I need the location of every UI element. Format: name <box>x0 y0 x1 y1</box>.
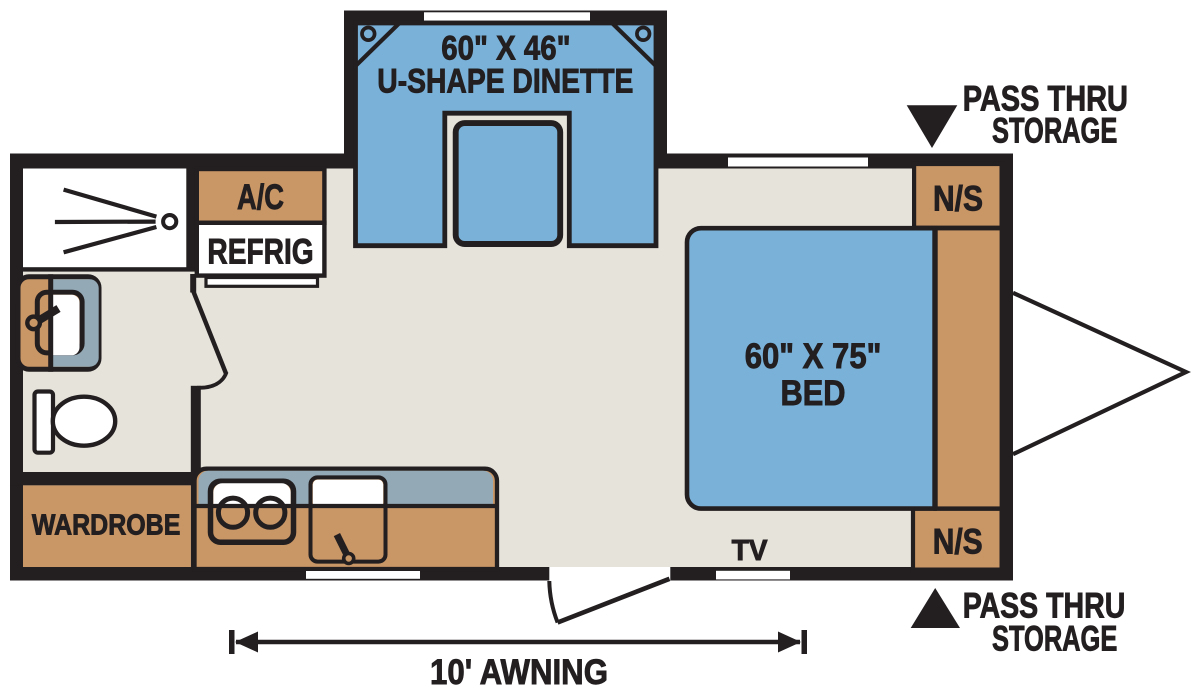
svg-text:WARDROBE: WARDROBE <box>32 509 181 541</box>
svg-text:REFRIG: REFRIG <box>207 232 313 272</box>
svg-text:A/C: A/C <box>237 178 284 217</box>
svg-text:10' AWNING: 10' AWNING <box>430 653 608 691</box>
svg-text:U-SHAPE DINETTE: U-SHAPE DINETTE <box>377 63 633 101</box>
svg-text:STORAGE: STORAGE <box>992 112 1117 151</box>
svg-text:N/S: N/S <box>933 522 983 562</box>
svg-text:60" X 75": 60" X 75" <box>745 337 882 376</box>
svg-text:BED: BED <box>781 374 846 413</box>
svg-text:TV: TV <box>732 535 768 567</box>
svg-text:STORAGE: STORAGE <box>992 620 1117 659</box>
svg-text:N/S: N/S <box>933 179 983 219</box>
